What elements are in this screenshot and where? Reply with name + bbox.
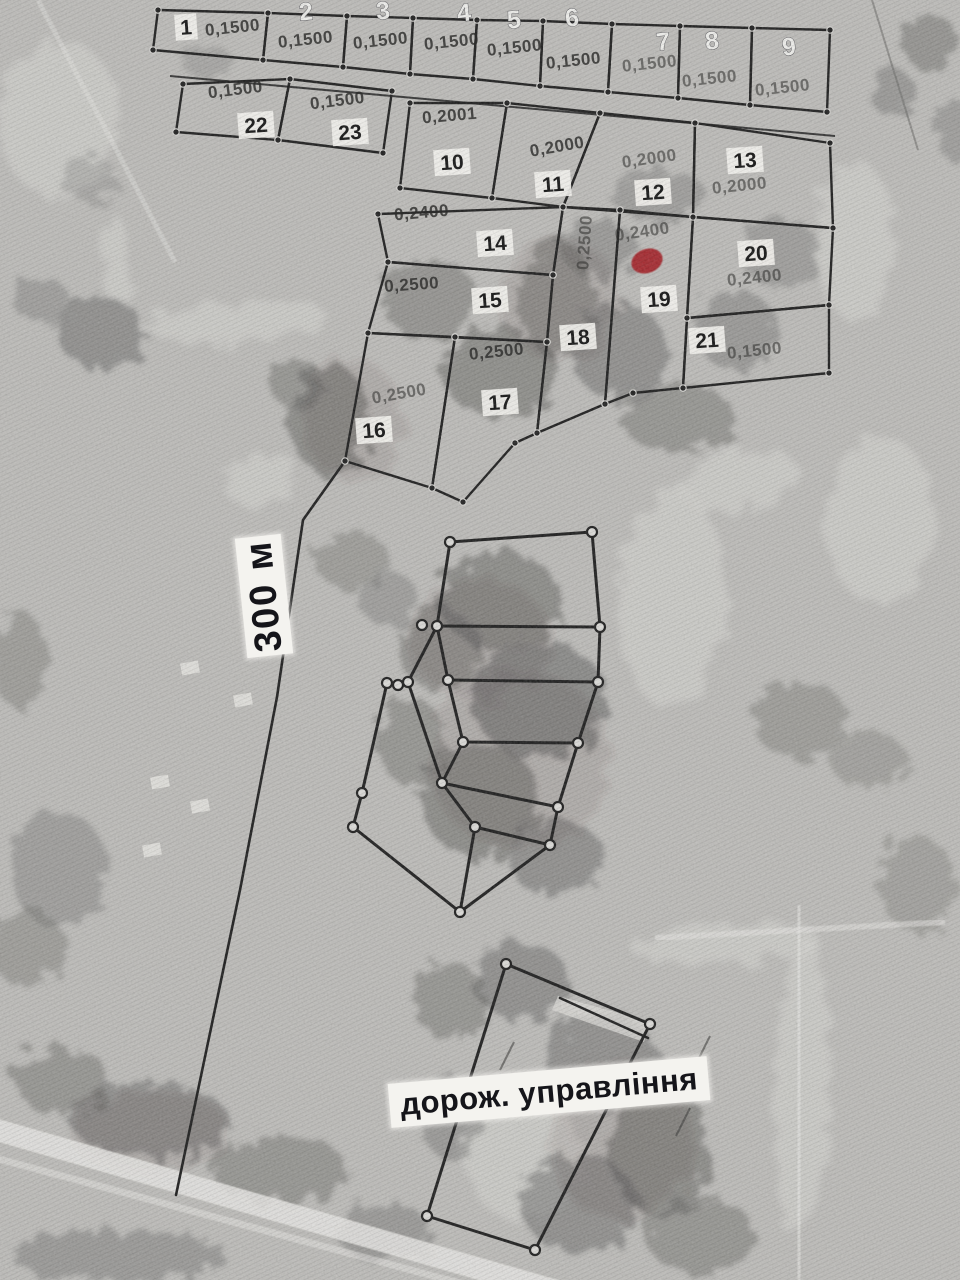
- scanned-cadastral-map: 1234567892223101112131415161718192021 0,…: [0, 0, 960, 1280]
- parcel-15-area: 0,2500: [384, 273, 440, 296]
- parcel-18-area: 0,2500: [573, 215, 596, 271]
